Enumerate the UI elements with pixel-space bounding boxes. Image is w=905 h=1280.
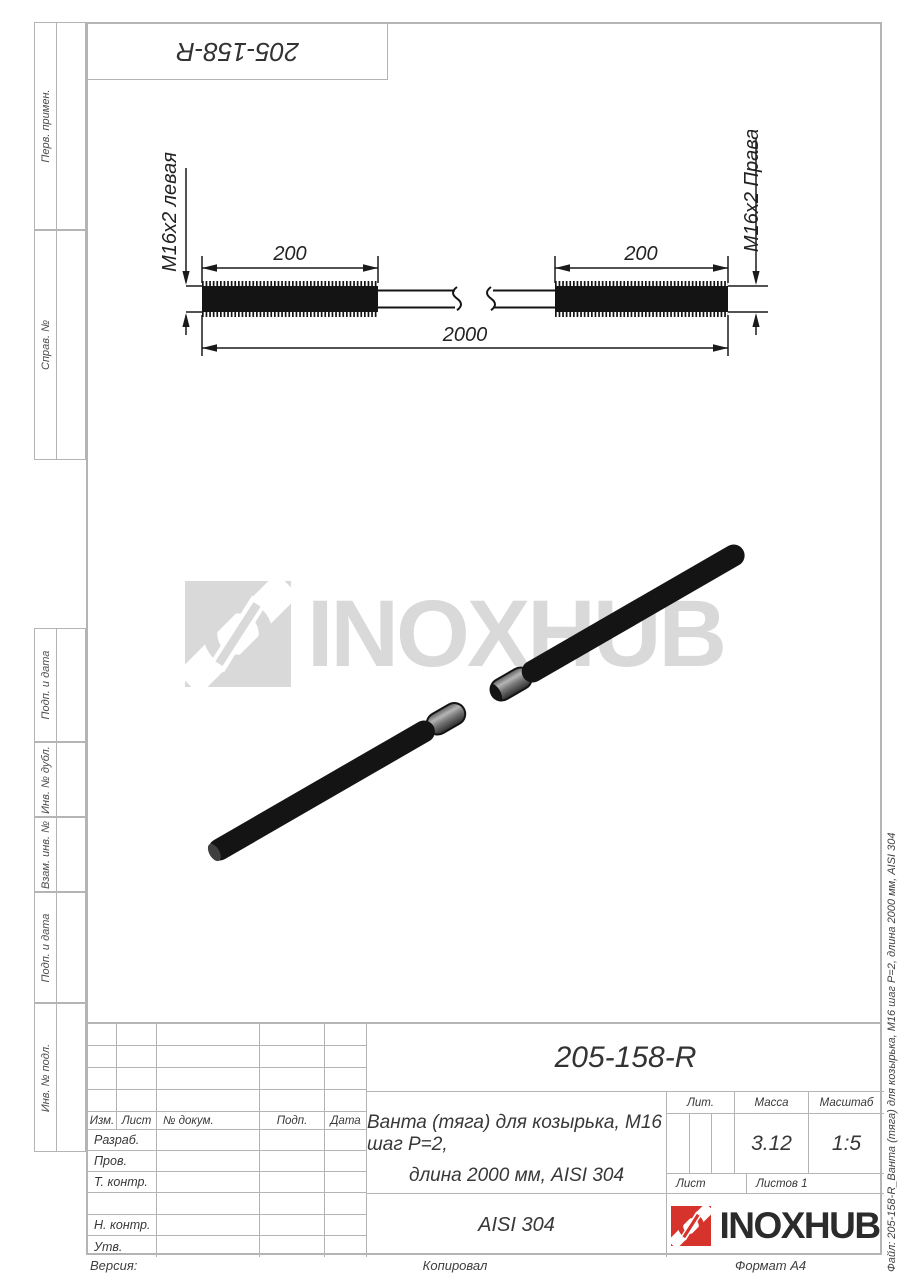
sheet-number-label: Лист (667, 1174, 747, 1194)
revision-table (88, 1024, 367, 1112)
empty-cell (325, 1193, 367, 1215)
empty-cell (325, 1236, 367, 1257)
brand-text: INOXHUB (719, 1205, 879, 1247)
revision-cell (88, 1068, 117, 1090)
revision-cell (325, 1068, 367, 1090)
title-block: Изм. Лист № докум. Подп. Дата Разраб. Пр… (86, 1022, 882, 1255)
thread-right-callout: M16x2 Правая (741, 130, 763, 252)
rod-threads (202, 284, 728, 315)
col-header-list: Лист (117, 1112, 157, 1130)
col-header-dokum: № докум. (157, 1112, 260, 1130)
col-header-data: Дата (325, 1112, 367, 1130)
revision-cell (157, 1090, 260, 1112)
scale-header: Масштаб (809, 1092, 884, 1114)
inoxhub-brand: INOXHUB (671, 1205, 879, 1247)
empty-cell (260, 1130, 325, 1151)
designation-field: 205-158-R (367, 1024, 884, 1092)
rod-upper-segment (487, 540, 749, 704)
revision-cell (117, 1024, 157, 1046)
margin-label: Взам. инв. № (40, 820, 52, 888)
footer-version-label: Версия: (90, 1258, 137, 1273)
mass-value: 3.12 (735, 1114, 809, 1174)
empty-cell (325, 1172, 367, 1193)
row-label-razrab: Разраб. (88, 1130, 157, 1151)
file-name-label: Файл: 205-158-R_Ванта (тяга) для козырьк… (886, 833, 898, 1272)
empty-cell (157, 1130, 260, 1151)
revision-cell (260, 1046, 325, 1068)
revision-cell (260, 1068, 325, 1090)
margin-label: Перв. примен. (40, 89, 52, 162)
empty-cell (157, 1193, 260, 1215)
empty-cell (157, 1172, 260, 1193)
empty-cell (260, 1215, 325, 1236)
revision-cell (88, 1046, 117, 1068)
rod-3d-render (190, 530, 770, 880)
empty-cell (260, 1151, 325, 1172)
description-line-1: Ванта (тяга) для козырька, М16 шаг Р=2, (367, 1112, 666, 1156)
margin-box-sprav: Справ. № (34, 230, 86, 460)
col-header-izm: Изм. (88, 1112, 117, 1130)
revision-cell (157, 1024, 260, 1046)
margin-box-podp-data-2: Подп. и дата (34, 892, 86, 1003)
empty-cell (260, 1236, 325, 1257)
empty-cell (325, 1130, 367, 1151)
empty-cell (157, 1151, 260, 1172)
dim-right-200: 200 (623, 243, 657, 265)
lit-header: Лит. (667, 1092, 735, 1114)
top-rotated-stamp: 205-158-R (86, 22, 388, 80)
lit-cell (667, 1114, 690, 1174)
revision-cell (117, 1046, 157, 1068)
row-label-n-kontr: Н. контр. (88, 1215, 157, 1236)
margin-label: Подп. и дата (40, 651, 52, 720)
margin-box-vzam-inv: Взам. инв. № (34, 817, 86, 892)
revision-cell (117, 1068, 157, 1090)
row-label-prov: Пров. (88, 1151, 157, 1172)
revision-cell (117, 1090, 157, 1112)
row-label-utv: Утв. (88, 1236, 157, 1257)
margin-label: Справ. № (40, 320, 52, 370)
revision-cell (260, 1024, 325, 1046)
empty-cell (157, 1236, 260, 1257)
dim-left-200: 200 (272, 243, 306, 265)
inoxhub-logo-icon (671, 1206, 711, 1246)
top-stamp-text: 205-158-R (176, 36, 299, 67)
footer-format-label: Формат А4 (735, 1258, 806, 1273)
lit-cell (712, 1114, 735, 1174)
margin-label: Инв. № дубл. (40, 746, 52, 814)
margin-box-inv-podl: Инв. № подл. (34, 1003, 86, 1152)
row-label-empty (88, 1193, 157, 1215)
empty-cell (157, 1215, 260, 1236)
empty-cell (325, 1215, 367, 1236)
lit-cell (690, 1114, 712, 1174)
margin-box-perv-primen: Перв. примен. (34, 22, 86, 230)
margin-box-podp-data-1: Подп. и дата (34, 628, 86, 742)
mass-header: Масса (735, 1092, 809, 1114)
sheets-total-label: Листов 1 (747, 1174, 884, 1194)
col-header-podp: Подп. (260, 1112, 325, 1130)
revision-cell (157, 1046, 260, 1068)
revision-cell (260, 1090, 325, 1112)
revision-cell (88, 1090, 117, 1112)
empty-cell (260, 1172, 325, 1193)
margin-label: Инв. № подл. (40, 1043, 52, 1111)
margin-label: Подп. и дата (40, 913, 52, 982)
revision-cell (157, 1068, 260, 1090)
scale-value: 1:5 (809, 1114, 884, 1174)
margin-box-inv-dubl: Инв. № дубл. (34, 742, 86, 817)
revision-cell (325, 1024, 367, 1046)
material-field: AISI 304 (367, 1194, 667, 1257)
revision-cell (88, 1024, 117, 1046)
description-line-2: длина 2000 мм, AISI 304 (409, 1165, 624, 1187)
empty-cell (260, 1193, 325, 1215)
rod-shaft (378, 287, 555, 310)
footer-copied-label: Копировал (423, 1258, 488, 1273)
revision-cell (325, 1090, 367, 1112)
description-field: Ванта (тяга) для козырька, М16 шаг Р=2, … (367, 1092, 667, 1194)
company-logo-cell: INOXHUB (667, 1194, 884, 1257)
revision-cell (325, 1046, 367, 1068)
row-label-t-kontr: Т. контр. (88, 1172, 157, 1193)
rod-lower-segment (205, 699, 470, 865)
dim-total-2000: 2000 (442, 324, 488, 346)
empty-cell (325, 1151, 367, 1172)
dimension-drawing: 200 200 2000 M16x2 левая M16x2 Правая (140, 130, 800, 380)
thread-left-callout: M16x2 левая (159, 152, 181, 272)
